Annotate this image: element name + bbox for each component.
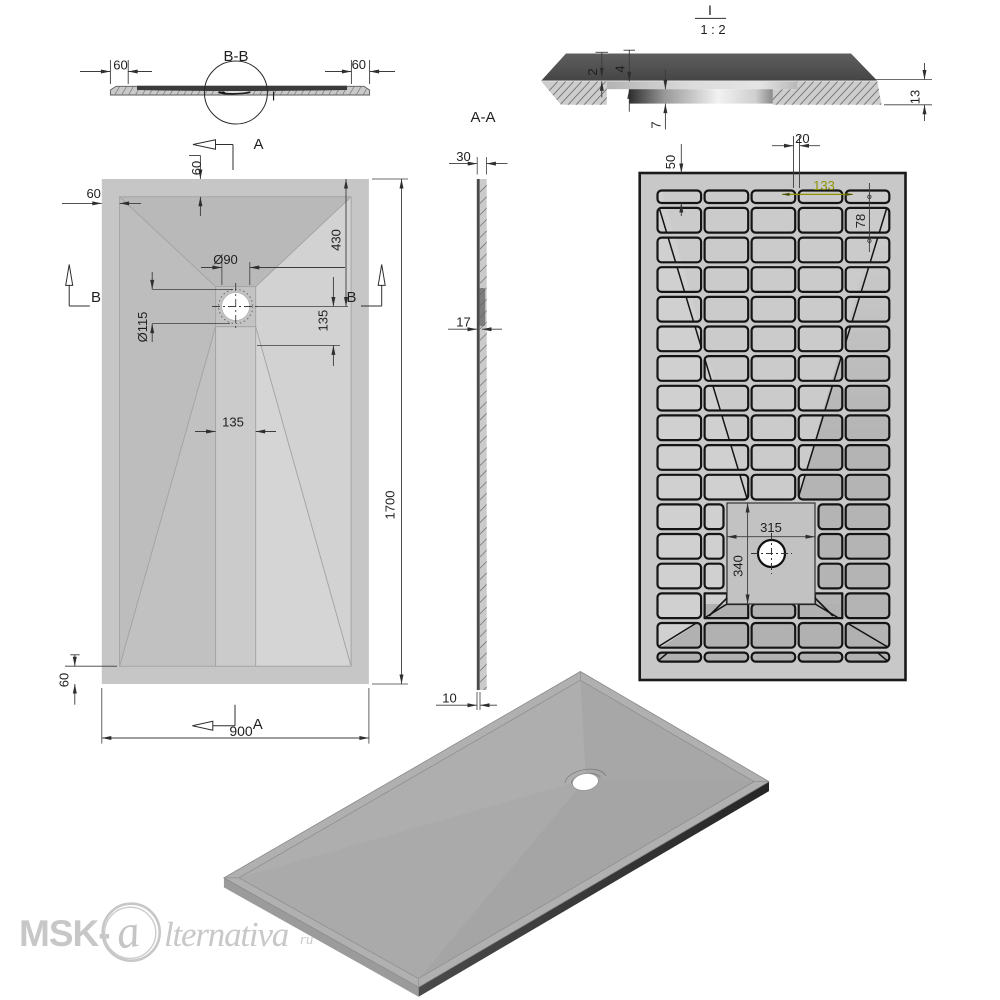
svg-text:ru: ru [300,932,313,948]
svg-text:17: 17 [456,315,470,330]
svg-text:7: 7 [649,121,664,128]
svg-text:430: 430 [329,229,344,251]
svg-text:1 : 2: 1 : 2 [700,22,725,37]
svg-text:133: 133 [813,178,835,193]
svg-text:135: 135 [222,415,244,430]
svg-text:13: 13 [908,90,923,104]
svg-text:30: 30 [456,149,470,164]
svg-text:A: A [253,716,263,733]
svg-text:60: 60 [57,673,72,687]
svg-text:1700: 1700 [383,491,398,520]
svg-text:A: A [253,136,263,153]
svg-text:2: 2 [585,68,600,75]
svg-text:340: 340 [731,555,746,577]
svg-text:B: B [91,289,101,306]
svg-text:Ø115: Ø115 [135,312,150,343]
svg-text:60: 60 [189,161,204,175]
svg-text:I: I [708,2,712,18]
svg-text:MSK-: MSK- [19,913,110,954]
svg-text:50: 50 [663,155,678,169]
svg-text:Ø90: Ø90 [213,252,238,267]
svg-text:60: 60 [352,57,366,72]
svg-text:10: 10 [442,691,456,706]
svg-text:60: 60 [113,58,127,73]
svg-text:20: 20 [795,131,809,146]
svg-text:315: 315 [760,520,782,535]
svg-text:lternativa: lternativa [164,915,289,954]
svg-text:135: 135 [316,310,331,332]
svg-text:A-A: A-A [470,109,495,126]
svg-text:I: I [272,89,276,104]
svg-text:78: 78 [853,214,868,228]
svg-text:4: 4 [613,65,628,72]
svg-text:B: B [346,289,356,306]
svg-text:60: 60 [86,186,100,201]
